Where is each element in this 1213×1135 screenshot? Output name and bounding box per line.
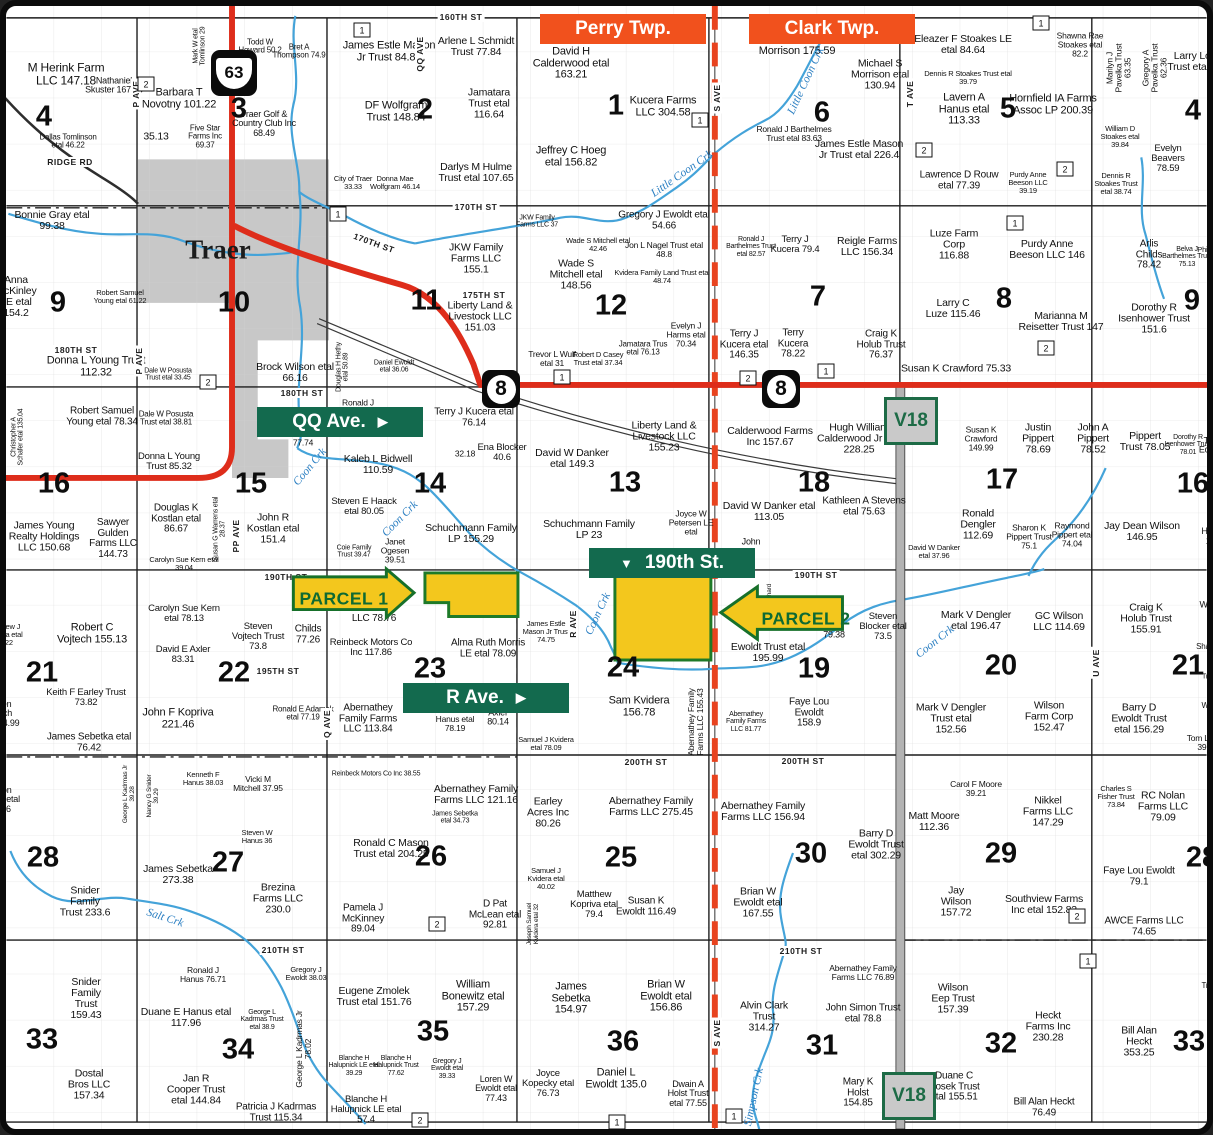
parcel-label: Steven Vojtech Trust 73.8: [230, 622, 286, 652]
lot-number: 1: [554, 370, 571, 385]
parcel-label: James Sebetka etal 34.73: [432, 811, 478, 826]
lot-number: 1: [1007, 216, 1024, 231]
parcel-label: James Sebetka 154.97: [535, 982, 607, 1017]
parcel-label: Wil 1: [1198, 600, 1213, 609]
section-number: 19: [798, 653, 830, 686]
avenue-label: P AVE: [134, 346, 144, 377]
section-number: 11: [411, 285, 442, 318]
parcel-label: Kucera Farms LLC 304.58: [627, 95, 699, 118]
parcel-label: Purdy Anne Beeson LLC 39.19: [1002, 171, 1054, 195]
section-number: 21: [26, 657, 58, 690]
parcel-label: Kvidera Family Land Trust etal 48.74: [614, 269, 710, 285]
parcel-label: Five Star Farms Inc 69.37: [179, 124, 231, 149]
lot-number: 2: [429, 917, 446, 932]
section-number: 7: [810, 281, 826, 314]
section-number: 35: [417, 1016, 449, 1049]
parcel-label: George L Kadrmas Jr 78.02: [295, 1005, 313, 1093]
parcel-label: David W Danker etal 37.96: [906, 544, 962, 560]
avenue-label: Q AVE: [322, 708, 332, 740]
section-number: 3: [231, 93, 247, 126]
parcel-label: GC Wilson LLC 114.69: [1031, 611, 1087, 633]
parcel-label: Jamatara Trust etal 116.64: [456, 87, 522, 120]
section-number: 4: [36, 101, 52, 134]
parcel-label: Heckt Farms Inc 230.28: [1022, 1010, 1074, 1043]
parcel-label: Carolyn Sue Kern etal 39.04: [145, 556, 223, 572]
parcel-label: Wilson Farm Corp 152.47: [1021, 700, 1077, 733]
parcel-label: Eleazer F Stoakes LE etal 84.64: [914, 34, 1012, 56]
parcel-label: Blanche H Halupnick LE etal 57.4: [330, 1095, 402, 1125]
parcel-label: Abernathey Family Farms LLC 76.89: [822, 964, 904, 982]
street-label: RIDGE RD: [45, 157, 95, 167]
street-label: 175TH ST: [461, 290, 508, 300]
parcel-label: Terry J Kucera etal 76.14: [428, 408, 520, 429]
section-number: 15: [235, 468, 267, 501]
parcel-label: Sam Kvidera 156.78: [608, 695, 670, 718]
parcel-label: Kaleb L Bidwell 110.59: [332, 454, 424, 476]
parcel-label: Bill Alan Heckt 353.25: [1110, 1025, 1168, 1058]
parcel-label: Bill Alan Heckt 76.49: [1005, 1098, 1083, 1119]
creek-label: Little Coon Crk: [649, 148, 715, 199]
section-number: 28: [27, 842, 59, 875]
section-number: 36: [607, 1026, 639, 1059]
section-number: 9: [1184, 285, 1200, 318]
section-number: 32: [985, 1028, 1017, 1061]
parcel-label: Dale W Posusta Trust etal 33.45: [142, 368, 194, 383]
parcel-label: JKW Family Farms LLC 37: [511, 215, 563, 230]
parcel-label: James Sebetka etal 76.42: [40, 733, 138, 754]
parcel-label: Terry J Kucera etal 146.35: [716, 329, 772, 361]
parcel-label: Abernathey Family Farms LLC 275.45: [600, 796, 702, 818]
section-number: 18: [798, 467, 830, 500]
parcel-label: John F Kopriva 221.46: [142, 707, 214, 730]
parcel-label: Patricia J Kadrmas Trust 115.34: [235, 1103, 317, 1124]
lot-number: 2: [740, 371, 757, 386]
parcel-label: Anna McKinley LE etal 154.2: [0, 275, 44, 319]
street-label: 180TH ST: [53, 345, 100, 355]
creek-label: Coon Crk: [583, 591, 613, 637]
parcel-label: Mark W etal Tomlinson 29: [193, 17, 208, 75]
lot-number: 2: [1038, 341, 1055, 356]
street-label: 180TH ST: [279, 388, 326, 398]
lot-number: 1: [692, 113, 709, 128]
parcel-label: Keith F Earley Trust 73.82: [42, 688, 130, 708]
parcel-label: Liberty Land & Livestock LLC 151.03: [437, 300, 523, 333]
avenue-label: PP AVE: [231, 517, 241, 554]
parcel-label: Brian W Ewoldt etal 167.55: [727, 886, 789, 919]
parcel-label: Lavern A Hanus etal 113.33: [928, 93, 1000, 128]
parcel-label: Tom Low 39.: [1186, 734, 1213, 752]
parcel-label: Gregory J Ewoldt etal 54.66: [618, 211, 710, 232]
parcel-label: Joseph Samuel Kvidera etal 32: [527, 901, 541, 947]
parcel-label: Donna Mae Wolfgram 46.14: [369, 175, 421, 191]
parcel-label: Abernathey Family Farms LLC 156.94: [720, 801, 806, 823]
lot-number: 2: [1069, 909, 1086, 924]
parcel-label: Matthew Kopriva etal 79.4: [566, 890, 622, 920]
parcel-label: Steven W Hanus 36: [231, 829, 283, 845]
parcel-label: Hornfield IA Farms Assoc LP 200.39: [1007, 93, 1099, 116]
parcel-label: Joyce Kopecky etal 76.73: [522, 1069, 574, 1099]
parcel-label: Jay Wilson 157.72: [933, 885, 979, 918]
parcel-label: Luze Farm Corp 116.88: [928, 228, 980, 261]
parcel-label: S: [1206, 873, 1213, 884]
parcel-label: Snider Family Trust 233.6: [59, 885, 111, 918]
parcel-label: Daniel Ewoldt etal 36.06: [371, 360, 417, 375]
parcel-label: LLC 78.76: [343, 614, 405, 625]
lot-number: 2: [138, 77, 155, 92]
parcel-label: Faye Lou Ewoldt 79.1: [1096, 867, 1182, 888]
parcel-label: Wi: [1196, 702, 1213, 710]
parcel-label: Evelyn J Harms etal 70.34: [660, 322, 712, 349]
parcel-label: Matthew J Kopriva etal 77.22: [0, 623, 29, 647]
parcel-label: Steven E Haack etal 80.05: [325, 497, 403, 517]
parcel-label: Faye Lou Ewoldt 158.9: [783, 697, 835, 729]
parcel-label: Loren W Ewoldt etal 77.43: [470, 1075, 522, 1103]
parcel-label: Vicki M Mitchell 37.95: [232, 775, 284, 793]
parcel-label: 77.74: [283, 439, 323, 448]
section-number: 25: [605, 842, 637, 875]
parcel-label: David E Axler 83.31: [152, 645, 214, 665]
parcel-label: Dennis R Stoakes Trust etal 39.79: [922, 70, 1014, 86]
section-number: 30: [795, 838, 827, 871]
parcel-label: Jon L Nagel Trust etal 48.8: [621, 241, 707, 259]
parcel-label: William Bonewitz etal 157.29: [434, 980, 512, 1015]
parcel-label: Craig K Holub Trust 76.37: [855, 329, 907, 361]
parcel-label: Bonnie Gray etal 99.38: [6, 210, 98, 232]
parcel-label: Coie Family Trust 39.47: [333, 545, 375, 560]
section-number: 27: [212, 847, 244, 880]
parcel-label: Tere Eck 99: [1197, 437, 1213, 456]
section-number: 10: [218, 287, 250, 320]
creek-label: Coon Crk: [291, 446, 329, 488]
parcel-label: Brock Wilson etal 66.16: [254, 362, 336, 384]
avenue-label: S AVE: [712, 82, 722, 113]
parcel-label: Jeffrey C Hoeg etal 156.82: [533, 145, 609, 168]
section-number: 16: [1177, 468, 1209, 501]
section-number: 34: [222, 1034, 254, 1067]
section-number: 17: [986, 464, 1018, 497]
parcel-label: Raymond Pippert etal 74.04: [1044, 522, 1100, 549]
plat-map[interactable]: M Herink Farm LLC 147.18Nathaniel Skuste…: [0, 0, 1213, 1135]
parcel-label: Samuel J Kvidera etal 40.02: [520, 867, 572, 891]
parcel-label: Susan K Crawford 149.99: [953, 426, 1009, 453]
section-number: 20: [985, 650, 1017, 683]
parcel-label: Wilson Eep Trust 157.39: [930, 982, 976, 1015]
parcel-label: Duane E Hanus etal 117.96: [130, 1007, 242, 1029]
creek-label: Coon Crk: [914, 623, 957, 660]
parcel-label: Bret A Thompson 74.9: [270, 44, 328, 61]
section-number: 5: [1000, 93, 1016, 126]
parcel-label: John A Pippert 78.52: [1067, 422, 1119, 455]
parcel-label: Wade S Mitchell etal 148.56: [540, 258, 612, 291]
parcel-label: George L Kadrmas Jr 39.28: [123, 763, 137, 825]
city-label: Traer: [185, 235, 250, 266]
parcel-label: Kathleen A Stevens etal 75.63: [818, 497, 910, 518]
parcel-label: Jay Dean Wilson 146.95: [1103, 521, 1181, 543]
street-label: 170TH ST: [453, 202, 500, 212]
parcel-label: Douglas K Kostlan etal 86.67: [145, 503, 207, 535]
parcel-label: David W Danker etal 149.3: [534, 448, 610, 470]
parcel-label: Arlene L Schmidt Trust 77.84: [435, 36, 517, 58]
parcel-label: Alma Ruth Morris LE etal 78.09: [444, 639, 532, 660]
parcel-label: Marianna M Reisetter Trust 147: [1015, 311, 1107, 333]
section-number: 23: [414, 653, 446, 686]
parcel-label: Carolyn Sue Kern etal 78.13: [148, 604, 220, 624]
avenue-label: T AVE: [905, 79, 915, 110]
parcel-label: Robert Samuel Young etal 61.22: [89, 289, 151, 305]
lot-number: 2: [1057, 162, 1074, 177]
parcel-label: Abernathey Family Farms LLC 155.43: [687, 681, 705, 763]
parcel-label: D Pat McLean etal 92.81: [467, 899, 523, 931]
parcel-label: John Simon Trust etal 78.8: [817, 1004, 909, 1025]
parcel-label: Jan R Cooper Trust etal 144.84: [165, 1073, 227, 1106]
section-number: 1: [608, 90, 624, 123]
parcel-label: Carol F Moore 39.21: [950, 780, 1002, 798]
parcel-label: Reigle Farms LLC 156.34: [836, 236, 898, 258]
parcel-label: Robert Samuel Young etal 78.34: [59, 407, 145, 428]
parcel-label: Ronald Dengler 112.69: [947, 508, 1009, 541]
street-label: 200TH ST: [623, 757, 670, 767]
section-number: 6: [814, 97, 830, 130]
parcel-label: Terry J Kucera 79.4: [769, 235, 821, 255]
section-number: 12: [595, 290, 627, 323]
parcel-label: James Young Realty Holdings LLC 150.68: [4, 520, 84, 553]
parcel-label: 79.38: [814, 630, 854, 639]
parcel-label: James Estle Mason Jr Trust etal 226.4: [813, 139, 905, 161]
parcel-label: Steven Blocker etal 73.5: [857, 612, 909, 642]
parcel-label: David W Danker etal 113.05: [720, 501, 818, 523]
avenue-label: QQ AVE: [415, 34, 425, 73]
parcel-label: Nikkel Farms LLC 147.29: [1020, 795, 1076, 828]
parcel-label: Purdy Anne Beeson LLC 146: [1006, 239, 1088, 261]
section-number: 28: [1186, 842, 1213, 875]
parcel-label: Susan K Ewoldt 116.49: [615, 897, 677, 918]
lot-number: 1: [354, 23, 371, 38]
parcel-label: Ronald J: [335, 399, 381, 408]
section-number: 26: [415, 841, 447, 874]
parcel-label: Hanus etal 78.19: [434, 715, 476, 733]
parcel-label: Schuchmann Family LP 23: [540, 519, 638, 541]
parcel-label: Reinbeck Motors Co Inc 117.86: [327, 638, 415, 658]
parcel-label: Larry Lorenz Trust etal 163.3: [1166, 51, 1213, 73]
section-number: 29: [985, 838, 1017, 871]
section-number: 8: [996, 283, 1012, 316]
parcel-label: Steven Vojtech Trust 74.99: [0, 700, 20, 728]
section-number: 33: [1173, 1026, 1205, 1059]
parcel-label: Jason Childs etal 78.56: [0, 786, 21, 814]
parcel-label: Steven: [809, 600, 851, 609]
parcel-label: Larry C Luze 115.46: [925, 298, 981, 320]
avenue-label: U AVE: [1091, 647, 1101, 679]
parcel-label: Christopher A Schafer etal 135.04: [11, 406, 26, 468]
parcel-label: Shawna Rae Stoakes etal 82.2: [1049, 32, 1111, 59]
parcel-label: Schuchmann Family LP 155.29: [422, 523, 520, 545]
creek-label: Salt Crk: [145, 906, 185, 929]
parcel-label: Alvin Clark Trust 314.27: [738, 1000, 790, 1033]
parcel-label: Richard V: [767, 591, 781, 605]
parcel-label: Phill McKe 78.: [1196, 246, 1213, 262]
parcel-label: Tru: [1195, 982, 1213, 990]
section-number: 2: [417, 94, 433, 127]
parcel-label: Gregory A Pavelka Trust 62.36: [1142, 40, 1169, 96]
parcel-label: Matt Moore 112.36: [906, 811, 962, 833]
lot-number: 2: [200, 375, 217, 390]
parcel-label: Donna L Young Trust 85.32: [133, 452, 205, 472]
parcel-label: Pamela J McKinney 89.04: [330, 903, 396, 935]
avenue-label: S AVE: [712, 1017, 722, 1048]
parcel-label: Evelyn Beavers 78.59: [1140, 144, 1196, 174]
parcel-label: Susan K Crawford 75.33: [900, 363, 1012, 374]
parcel-label: David H Calderwood etal 163.21: [523, 47, 619, 82]
parcel-label: Mary K Holst 154.85: [835, 1077, 881, 1109]
parcel-label: Justin Pippert 78.69: [1010, 422, 1066, 455]
parcel-label: Darlys M Hulme Trust etal 107.65: [438, 162, 514, 184]
parcel-label: Barry D Ewoldt Trust etal 302.29: [845, 828, 907, 861]
section-number: 16: [38, 468, 70, 501]
avenue-label: R AVE: [568, 608, 578, 640]
section-number: 33: [26, 1024, 58, 1057]
street-label: 200TH ST: [780, 756, 827, 766]
lot-number: 1: [330, 207, 347, 222]
lot-number: 1: [818, 364, 835, 379]
parcel-label: Ne Har et 109: [1200, 518, 1213, 546]
parcel-label: George L Kadrmas Trust etal 38.9: [236, 1009, 288, 1031]
parcel-label: John: [731, 537, 771, 546]
parcel-label: Ena Blocker 40.6: [476, 443, 528, 463]
parcel-label: Dorothy R Isenhower Trust 151.6: [1118, 302, 1190, 335]
parcel-label: Craig K Holub Trust 155.91: [1115, 602, 1177, 635]
lot-number: 1: [609, 1115, 626, 1130]
parcel-label: Morrison 175.59: [751, 46, 843, 58]
parcel-label: Eugene Zmolek Trust etal 151.76: [335, 986, 413, 1008]
parcel-label: Blanche H Halupnick Trust 77.62: [372, 1055, 420, 1077]
parcel-label: Gregory J Ewoldt 38.03: [280, 966, 332, 982]
section-number: 21: [1172, 650, 1204, 683]
parcel-label: Snider Family Trust 159.43: [60, 977, 112, 1021]
parcel-label: Abernathey Family Farms LLC 81.77: [723, 711, 769, 733]
parcel-label: Joyce W Petersen LE etal: [663, 510, 719, 537]
parcel-label: Reinbeck Motors Co Inc 38.55: [330, 770, 422, 777]
creek-label: Simpson Crk: [742, 1067, 766, 1127]
street-label: 160TH ST: [438, 12, 485, 22]
parcel-label: Janet Ogesen 39.51: [371, 538, 419, 565]
parcel-label: Terry Kucera 78.22: [767, 328, 819, 360]
lot-number: 2: [412, 1113, 429, 1128]
street-label: 210TH ST: [778, 946, 825, 956]
parcel-label: Robert C Vojtech 155.13: [53, 622, 131, 645]
parcel-label: Liberty Land & Livestock LLC 155.23: [626, 420, 702, 453]
parcel-label: Marilyn J Pavelka Trust 63.35: [1106, 40, 1133, 96]
lot-number: 1: [1033, 16, 1050, 31]
parcel-label: Kenneth F Hanus 38.03: [177, 771, 229, 787]
lot-number: 2: [916, 143, 933, 158]
section-number: 9: [50, 287, 66, 320]
parcel-label: Douglas H Hethy etal 50.89: [336, 341, 351, 393]
parcel-label: Sawyer Gulden Farms LLC 144.73: [86, 518, 140, 560]
label-layer: M Herink Farm LLC 147.18Nathaniel Skuste…: [6, 6, 1207, 1129]
parcel-label: John R Kostlan etal 151.4: [242, 512, 304, 545]
parcel-label: Axler 80.14: [477, 709, 519, 728]
parcel-label: Lawrence D Rouw etal 77.39: [916, 171, 1002, 192]
parcel-label: Dennis R Stoakes Trust etal 38.74: [1088, 172, 1144, 196]
lot-number: 1: [726, 1109, 743, 1124]
parcel-label: Abernathey Family Farms LLC 113.84: [329, 703, 407, 735]
parcel-label: Calderwood Farms Inc 157.67: [727, 426, 813, 448]
parcel-label: RC Nolan Farms LLC 79.09: [1137, 790, 1189, 823]
parcel-label: AWCE Farms LLC 74.65: [1098, 917, 1190, 938]
section-number: 13: [609, 467, 641, 500]
parcel-label: Daniel L Ewoldt 135.0: [580, 1067, 652, 1090]
parcel-label: Duane C Hosek Trust etal 155.51: [925, 1071, 983, 1103]
parcel-label: Charles S Fisher Trust 73.84: [1092, 785, 1140, 809]
parcel-label: Ronald J Hanus 76.71: [177, 966, 229, 984]
parcel-label: Earley Acres Inc 80.26: [522, 796, 574, 829]
parcel-label: James Sebetka 273.38: [142, 864, 214, 886]
parcel-label: Dostal Bros LLC 157.34: [66, 1068, 112, 1101]
parcel-label: Hugh William Calderwood Jr etal 228.25: [815, 422, 903, 455]
parcel-label: Gregory J Ewoldt etal 39.33: [423, 1058, 471, 1080]
parcel-label: Brezina Farms LLC 230.0: [250, 882, 306, 915]
parcel-label: James Estle Mason Jr Trust 74.75: [521, 620, 571, 644]
lot-number: 1: [1080, 954, 1097, 969]
parcel-label: Nancy G Snider 39.29: [147, 768, 161, 824]
street-label: 190TH ST: [793, 570, 840, 580]
parcel-label: Abernathey Family Farms LLC 121.16: [433, 784, 519, 806]
street-label: 190TH ST: [263, 572, 310, 582]
parcel-label: Dale W Posusta Trust etal 38.81: [138, 411, 194, 428]
parcel-label: Samuel J Kvidera etal 78.09: [515, 736, 577, 752]
section-number: 22: [218, 657, 250, 690]
parcel-label: Brian W Ewoldt etal 156.86: [633, 980, 699, 1015]
section-number: 31: [806, 1030, 838, 1063]
parcel-label: Barry D Ewoldt Trust etal 156.29: [1111, 702, 1167, 735]
street-label: 210TH ST: [260, 945, 307, 955]
parcel-label: 35.13: [136, 131, 176, 142]
parcel-label: Dallas Tomlinson etal 46.22: [36, 134, 100, 151]
section-number: 4: [1185, 95, 1201, 128]
parcel-label: Mark V Dengler Trust etal 152.56: [915, 702, 987, 735]
section-number: 14: [414, 468, 446, 501]
street-label: 170TH ST: [350, 230, 397, 255]
section-number: 24: [607, 652, 639, 685]
parcel-label: Dwain A Holst Trust etal 77.55: [662, 1080, 714, 1108]
parcel-label: JKW Family Farms LLC 155.1: [445, 242, 507, 275]
street-label: 195TH ST: [255, 666, 302, 676]
